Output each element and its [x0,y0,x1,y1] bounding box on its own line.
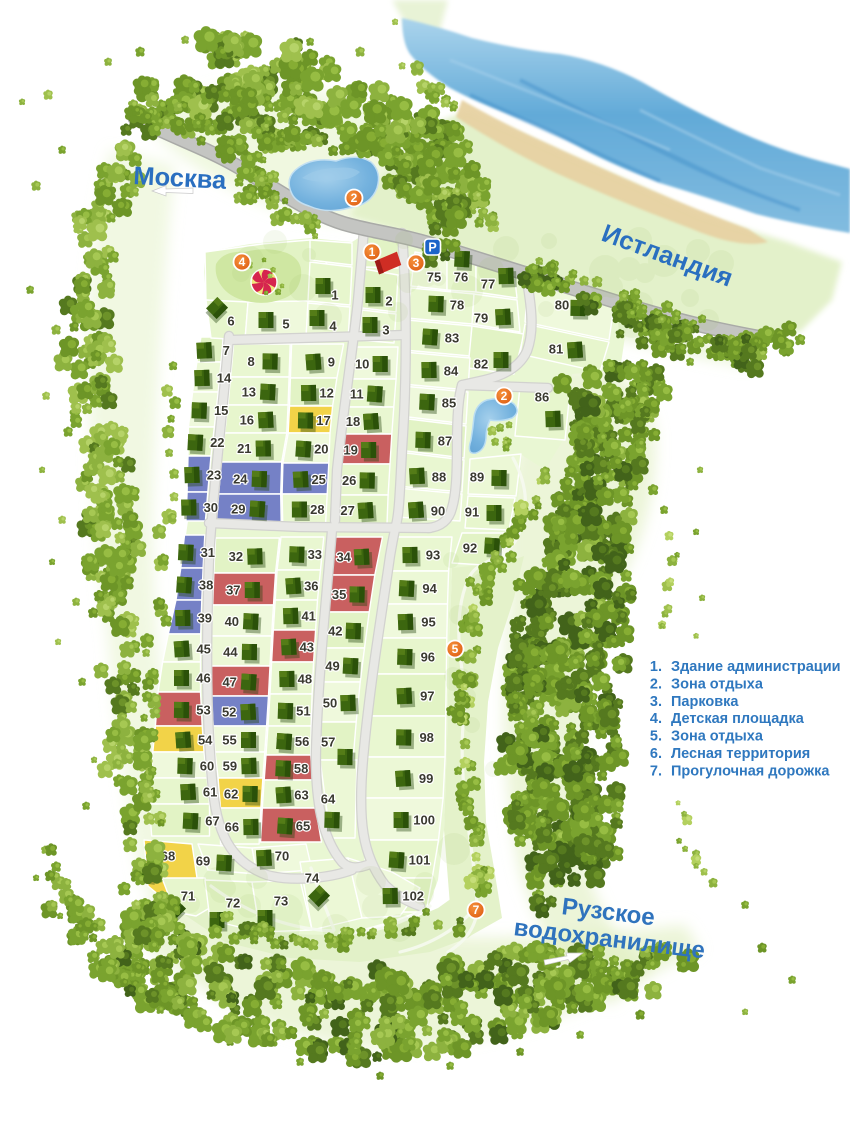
svg-text:35: 35 [332,587,346,602]
svg-text:1.: 1. [650,659,662,675]
svg-text:85: 85 [442,396,456,411]
svg-text:3: 3 [382,323,389,338]
svg-text:49: 49 [325,659,339,674]
svg-text:25: 25 [311,472,325,487]
svg-text:71: 71 [181,889,195,904]
svg-text:6.: 6. [650,746,662,762]
svg-text:79: 79 [474,311,488,326]
svg-text:19: 19 [343,443,357,458]
svg-text:20: 20 [314,442,328,457]
svg-text:75: 75 [427,270,441,285]
svg-text:80: 80 [555,298,569,313]
svg-text:88: 88 [432,470,446,485]
svg-text:89: 89 [470,470,484,485]
svg-text:101: 101 [409,853,431,868]
svg-text:12: 12 [319,386,333,401]
svg-text:50: 50 [323,696,337,711]
svg-text:61: 61 [203,785,217,800]
svg-text:Здание администрации: Здание администрации [671,659,841,675]
svg-text:63: 63 [294,788,308,803]
svg-text:52: 52 [222,705,236,720]
svg-text:Зона отдыха: Зона отдыха [671,676,764,692]
svg-text:2: 2 [385,294,392,309]
svg-text:74: 74 [305,871,320,886]
svg-text:69: 69 [196,854,210,869]
svg-text:82: 82 [474,357,488,372]
svg-text:99: 99 [419,771,433,786]
svg-text:4: 4 [329,319,337,334]
svg-text:P: P [428,241,436,255]
svg-text:81: 81 [549,342,563,357]
svg-text:100: 100 [413,813,435,828]
svg-text:11: 11 [350,387,364,402]
svg-text:72: 72 [226,896,240,911]
svg-text:43: 43 [300,640,314,655]
svg-text:Парковка: Парковка [671,694,739,710]
svg-text:95: 95 [421,615,435,630]
svg-text:53: 53 [196,703,210,718]
svg-text:60: 60 [200,759,214,774]
svg-text:94: 94 [422,581,437,596]
svg-text:76: 76 [454,270,468,285]
svg-text:21: 21 [237,441,251,456]
svg-text:78: 78 [450,298,464,313]
svg-text:83: 83 [445,331,459,346]
svg-text:9: 9 [328,355,335,370]
svg-text:90: 90 [431,504,445,519]
svg-text:98: 98 [419,730,433,745]
svg-text:64: 64 [321,792,336,807]
svg-text:62: 62 [224,787,238,802]
svg-text:59: 59 [223,759,237,774]
svg-text:48: 48 [298,672,312,687]
svg-text:7: 7 [473,903,480,917]
svg-text:93: 93 [426,548,440,563]
svg-text:65: 65 [296,819,310,834]
svg-text:23: 23 [207,468,221,483]
svg-text:86: 86 [535,390,549,405]
svg-text:1: 1 [369,245,376,259]
svg-text:15: 15 [214,403,228,418]
svg-text:70: 70 [275,849,289,864]
svg-text:96: 96 [421,650,435,665]
svg-text:Лесная территория: Лесная территория [671,746,810,762]
svg-text:30: 30 [204,500,218,515]
svg-text:44: 44 [223,645,238,660]
svg-text:17: 17 [316,413,330,428]
svg-text:36: 36 [304,579,318,594]
svg-text:51: 51 [296,704,310,719]
svg-text:34: 34 [336,550,351,565]
svg-text:45: 45 [196,642,210,657]
svg-text:16: 16 [240,413,254,428]
svg-text:7.: 7. [650,763,662,779]
svg-text:73: 73 [274,894,288,909]
svg-text:28: 28 [310,502,324,517]
svg-text:26: 26 [342,473,356,488]
svg-text:39: 39 [198,611,212,626]
svg-text:22: 22 [210,435,224,450]
svg-text:2: 2 [351,191,358,205]
svg-text:8: 8 [247,354,254,369]
svg-text:31: 31 [201,545,215,560]
svg-text:1: 1 [331,288,338,303]
svg-text:5: 5 [452,642,459,656]
svg-text:18: 18 [346,414,360,429]
svg-text:7: 7 [223,343,230,358]
svg-text:3: 3 [413,256,420,270]
svg-text:2: 2 [501,389,508,403]
svg-text:77: 77 [481,277,495,292]
svg-text:Детская площадка: Детская площадка [671,711,805,727]
svg-text:37: 37 [226,583,240,598]
svg-text:14: 14 [217,371,232,386]
svg-text:92: 92 [463,541,477,556]
svg-text:40: 40 [225,614,239,629]
svg-text:97: 97 [420,689,434,704]
svg-text:5: 5 [282,317,289,332]
svg-text:54: 54 [198,733,213,748]
svg-text:91: 91 [465,505,479,520]
svg-text:3.: 3. [650,694,662,710]
svg-text:58: 58 [294,761,308,776]
svg-text:67: 67 [205,814,219,829]
svg-text:41: 41 [301,609,315,624]
svg-text:47: 47 [222,675,236,690]
svg-text:27: 27 [340,503,354,518]
svg-text:33: 33 [308,547,322,562]
svg-text:84: 84 [444,364,459,379]
svg-text:38: 38 [199,578,213,593]
svg-text:Зона отдыха: Зона отдыха [671,729,764,745]
svg-text:55: 55 [222,733,236,748]
svg-text:56: 56 [295,734,309,749]
svg-text:46: 46 [196,671,210,686]
svg-text:5.: 5. [650,729,662,745]
svg-text:4: 4 [239,255,246,269]
svg-text:10: 10 [355,357,369,372]
svg-text:6: 6 [227,314,234,329]
svg-text:32: 32 [229,549,243,564]
svg-text:24: 24 [233,472,248,487]
svg-text:4.: 4. [650,711,662,727]
svg-text:57: 57 [321,735,335,750]
svg-text:87: 87 [438,434,452,449]
svg-text:Прогулочная дорожка: Прогулочная дорожка [671,763,830,779]
svg-text:66: 66 [225,820,239,835]
svg-text:102: 102 [402,889,424,904]
svg-text:29: 29 [231,502,245,517]
svg-text:2.: 2. [650,676,662,692]
svg-text:42: 42 [328,624,342,639]
svg-text:13: 13 [242,385,256,400]
